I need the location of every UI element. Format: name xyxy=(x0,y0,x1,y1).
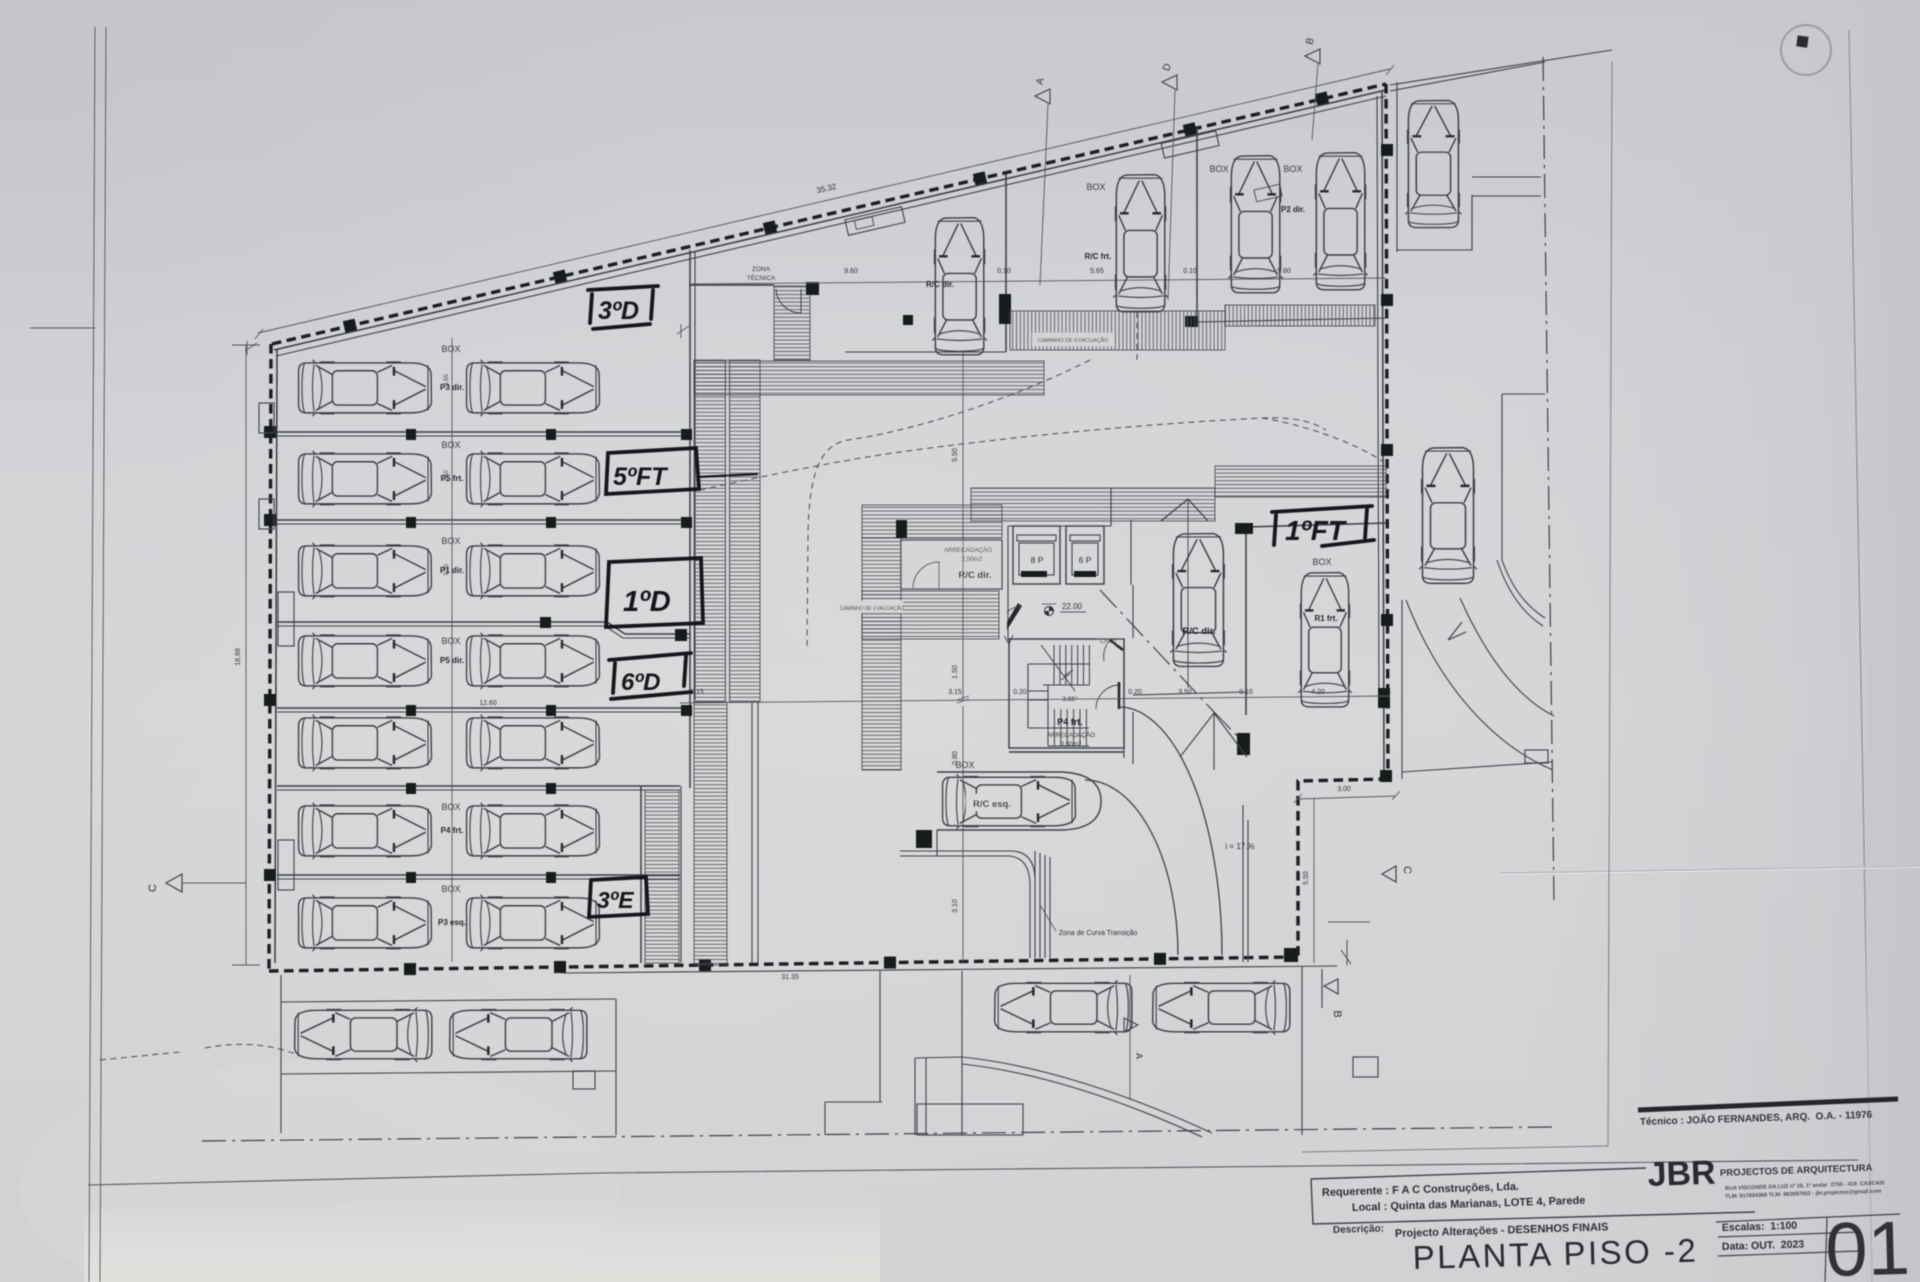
svg-text:R1 frt.: R1 frt. xyxy=(1314,614,1337,623)
svg-text:5.50: 5.50 xyxy=(952,448,959,462)
svg-text:12.60: 12.60 xyxy=(479,700,497,707)
svg-text:BOX: BOX xyxy=(441,344,460,354)
svg-text:A: A xyxy=(1134,1053,1144,1059)
svg-text:3,50m2: 3,50m2 xyxy=(1061,741,1082,748)
svg-text:BOX: BOX xyxy=(1086,182,1105,192)
svg-text:3.15: 3.15 xyxy=(948,689,962,696)
svg-text:P1 dir.: P1 dir. xyxy=(440,566,464,575)
svg-text:BOX: BOX xyxy=(441,536,460,546)
svg-text:P5 frt.: P5 frt. xyxy=(441,474,464,483)
svg-text:R/C dir.: R/C dir. xyxy=(926,280,954,289)
svg-text:0.10: 0.10 xyxy=(997,268,1011,275)
svg-text:3.00: 3.00 xyxy=(1337,786,1351,793)
svg-text:ARRECADAÇÃO: ARRECADAÇÃO xyxy=(944,547,992,554)
svg-text:2,50m2: 2,50m2 xyxy=(962,556,983,563)
svg-text:3ºE: 3ºE xyxy=(597,887,634,913)
svg-text:CAMINHO DE EVACUAÇÃO: CAMINHO DE EVACUAÇÃO xyxy=(840,605,904,612)
svg-text:P3 dir.: P3 dir. xyxy=(440,383,464,392)
svg-text:5.65: 5.65 xyxy=(1090,268,1104,275)
svg-text:5.50: 5.50 xyxy=(1303,871,1310,885)
svg-text:BOX: BOX xyxy=(441,802,460,812)
svg-text:B: B xyxy=(1331,1010,1343,1017)
svg-text:C: C xyxy=(147,884,159,892)
svg-text:CAMINHO DE EVACUAÇÃO: CAMINHO DE EVACUAÇÃO xyxy=(1038,337,1110,344)
svg-text:18.98: 18.98 xyxy=(235,648,242,666)
svg-text:BOX: BOX xyxy=(441,884,460,894)
svg-text:0.20: 0.20 xyxy=(1013,689,1027,696)
svg-text:6ºD: 6ºD xyxy=(621,669,660,696)
svg-text:C: C xyxy=(1401,866,1413,874)
svg-text:3.50: 3.50 xyxy=(1178,689,1192,696)
svg-text:i = 17.%: i = 17.% xyxy=(1225,842,1254,851)
svg-text:5ºFT: 5ºFT xyxy=(613,463,669,491)
svg-text:BOX: BOX xyxy=(1312,557,1331,567)
svg-text:P4 frt.: P4 frt. xyxy=(441,826,464,835)
svg-text:8 P: 8 P xyxy=(1031,555,1044,565)
svg-text:BOX: BOX xyxy=(955,760,974,770)
svg-text:BOX: BOX xyxy=(441,440,460,450)
svg-text:ZONA: ZONA xyxy=(752,266,771,273)
svg-text:1ºD: 1ºD xyxy=(623,586,671,618)
svg-text:R/C frt.: R/C frt. xyxy=(1085,252,1112,261)
svg-text:Zona de Curva Transição: Zona de Curva Transição xyxy=(1059,930,1138,937)
svg-text:1.50: 1.50 xyxy=(952,665,959,679)
svg-text:BOX: BOX xyxy=(1209,164,1228,174)
svg-text:TÉCNICA: TÉCNICA xyxy=(747,273,776,282)
svg-text:22.00: 22.00 xyxy=(1062,602,1083,611)
svg-text:PLANTA PISO -2: PLANTA PISO -2 xyxy=(1412,1232,1699,1276)
svg-text:1ºFT: 1ºFT xyxy=(1285,515,1348,546)
svg-text:R/C esq.: R/C esq. xyxy=(973,799,1011,810)
svg-text:9.60: 9.60 xyxy=(844,268,858,275)
svg-text:P5 dir.: P5 dir. xyxy=(440,656,464,665)
svg-text:ARRECADAÇÃO: ARRECADAÇÃO xyxy=(1047,732,1095,739)
svg-text:3ºD: 3ºD xyxy=(598,297,639,325)
svg-text:3.10: 3.10 xyxy=(952,899,959,913)
svg-text:31.35: 31.35 xyxy=(781,974,799,981)
svg-text:P4 frt.: P4 frt. xyxy=(1057,717,1083,727)
svg-text:0.10: 0.10 xyxy=(1183,268,1197,275)
svg-text:JBR: JBR xyxy=(1647,1154,1716,1194)
svg-text:BOX: BOX xyxy=(1283,164,1302,174)
svg-text:P3 esq.: P3 esq. xyxy=(438,918,466,927)
svg-text:R/C dir.: R/C dir. xyxy=(1182,626,1215,637)
svg-text:P2 dir.: P2 dir. xyxy=(1281,205,1305,214)
svg-text:BOX: BOX xyxy=(441,636,460,646)
svg-text:6 P: 6 P xyxy=(1079,555,1092,565)
svg-text:Descrição:: Descrição: xyxy=(1333,1223,1384,1236)
